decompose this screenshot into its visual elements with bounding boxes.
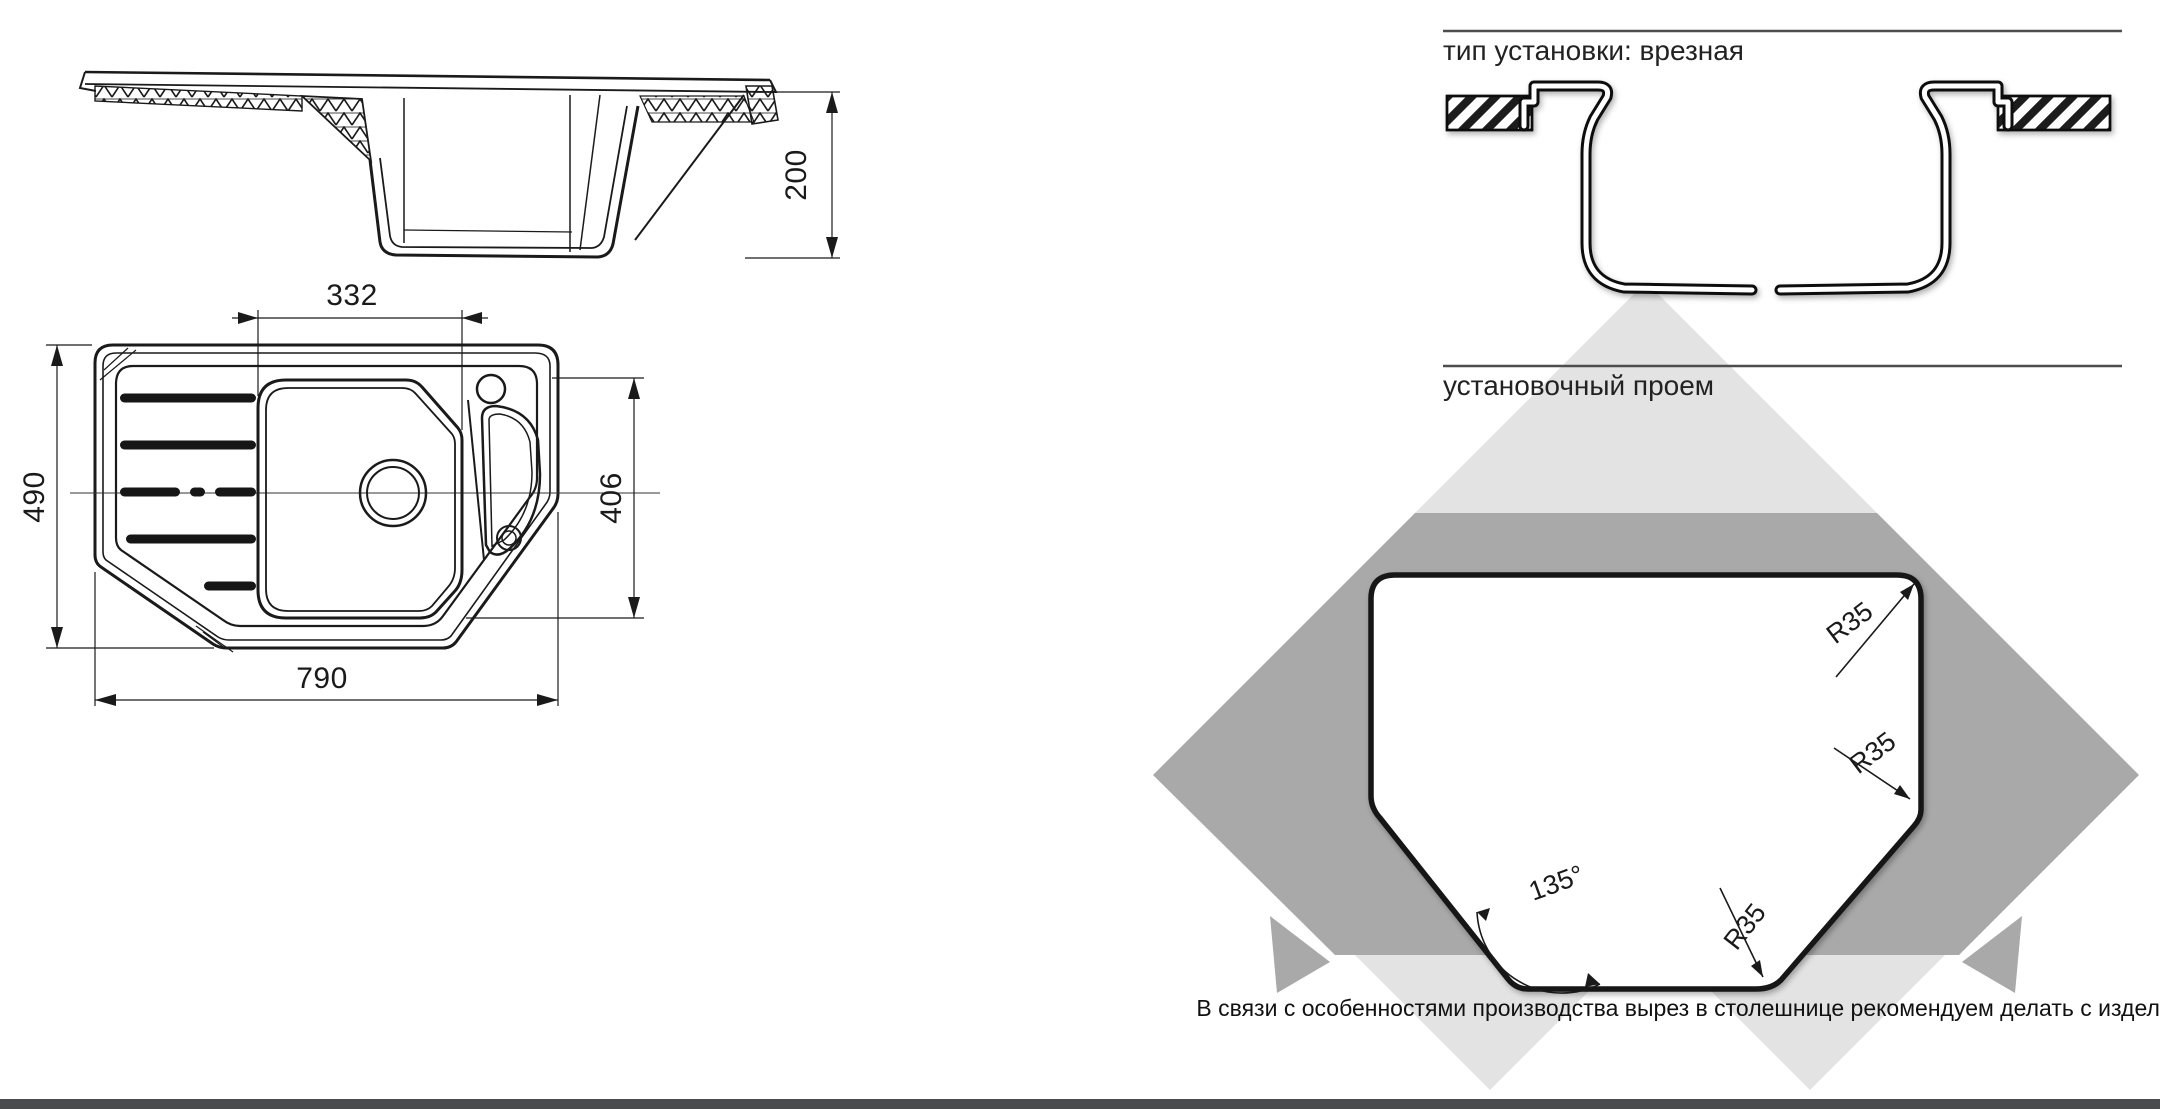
dim-406-label: 406: [595, 472, 628, 524]
spec-sheet-page: тип установки: врезная установочный прое…: [0, 0, 2160, 1109]
drainboard-ribs: [120, 394, 256, 591]
production-note: В связи с особенностями производства выр…: [1196, 995, 2160, 1021]
opening-title: установочный проем: [1443, 370, 1714, 401]
dim-200-label: 200: [780, 149, 813, 201]
gusset-section: [302, 96, 371, 161]
dim-406: 406: [466, 378, 644, 618]
side-view-drawing: 200: [80, 72, 840, 258]
dim-490-label: 490: [18, 471, 51, 523]
faucet-hole: [477, 375, 505, 403]
right-ledge-hatch: [640, 96, 754, 122]
dim-790-label: 790: [296, 662, 348, 695]
countertop-right-bar: [1998, 96, 2110, 130]
dim-332: 332: [232, 279, 488, 430]
dim-332-label: 332: [326, 279, 378, 312]
page-footer-bar: [0, 1099, 2160, 1109]
drainboard-section-hatch: [95, 86, 302, 111]
sink-spec-drawing: тип установки: врезная установочный прое…: [0, 0, 2160, 1109]
cross-section-backdrop: [1405, 60, 2150, 288]
rim-left-cap: [80, 72, 96, 91]
top-view-drawing: 332 490 790 406: [18, 279, 660, 706]
install-type-title: тип установки: врезная: [1443, 35, 1744, 66]
